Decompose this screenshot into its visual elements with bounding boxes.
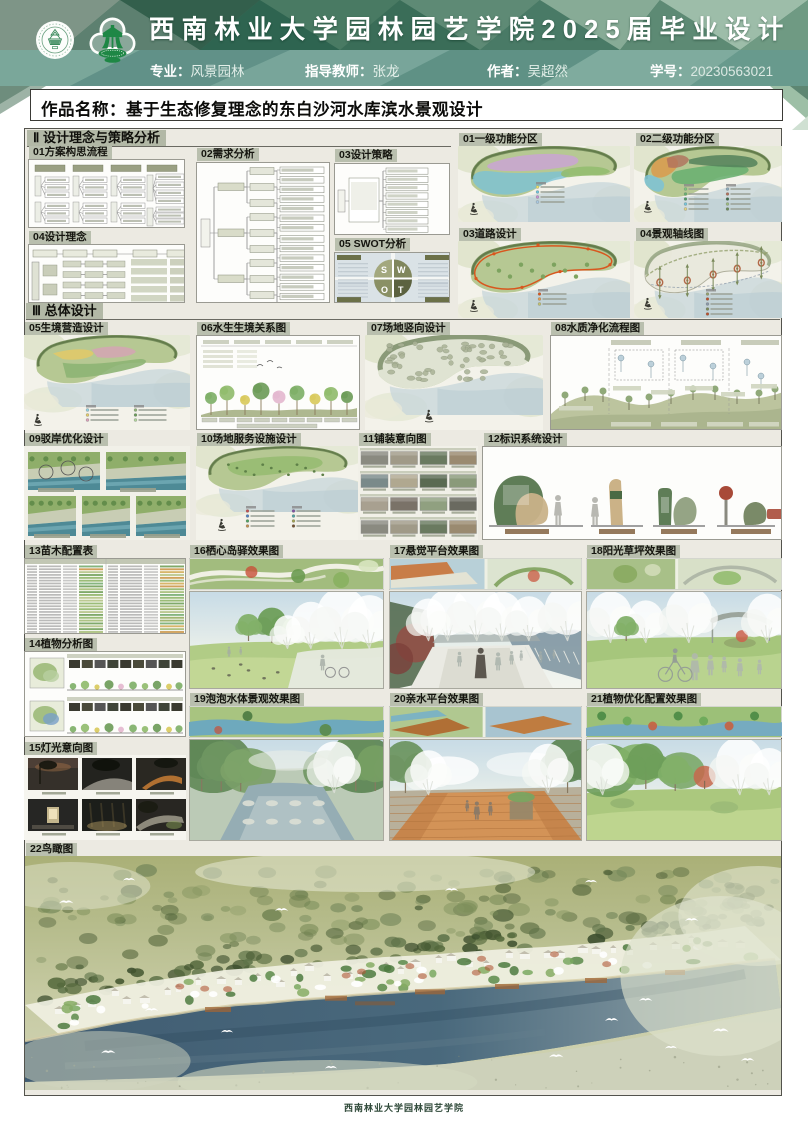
svg-text:S: S	[381, 265, 387, 275]
svg-text:W: W	[397, 265, 406, 275]
svg-text:O: O	[381, 285, 388, 295]
svg-text:T: T	[398, 285, 404, 295]
